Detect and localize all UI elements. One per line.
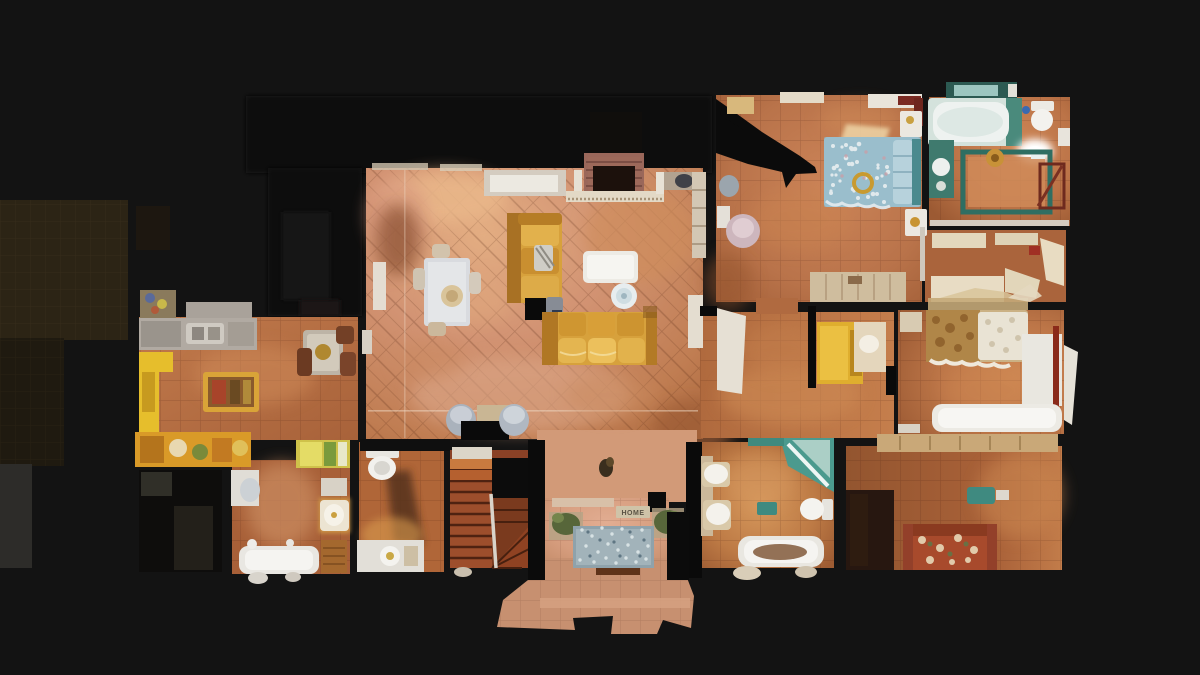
svg-text:HOME: HOME [622, 510, 645, 517]
